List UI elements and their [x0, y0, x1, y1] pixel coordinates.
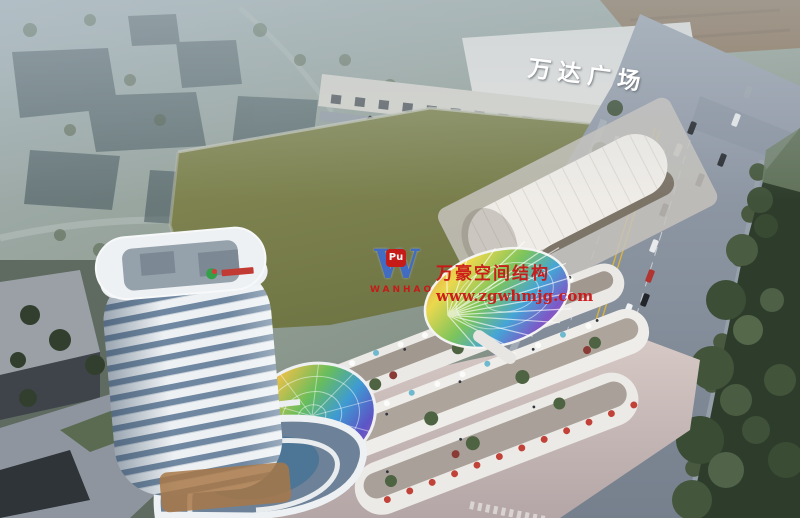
wanhao-logo-name: WANHAO	[370, 285, 424, 295]
wanhao-logo: W Pu WANHAO	[370, 246, 424, 295]
architectural-rendering: 万达广场 W Pu WANHAO 万豪空间结构 www.zgwhmjg.com	[0, 0, 800, 518]
roof-equipment-1	[140, 251, 176, 276]
watermark: W Pu WANHAO 万豪空间结构 www.zgwhmjg.com	[370, 246, 593, 305]
watermark-text: 万豪空间结构 www.zgwhmjg.com	[436, 246, 593, 305]
watermark-url: www.zgwhmjg.com	[436, 287, 593, 305]
wanhao-logo-badge-icon: Pu	[386, 249, 406, 267]
atmospheric-haze	[0, 0, 800, 200]
high-rise-tower	[93, 225, 292, 517]
watermark-title: 万豪空间结构	[436, 259, 593, 284]
